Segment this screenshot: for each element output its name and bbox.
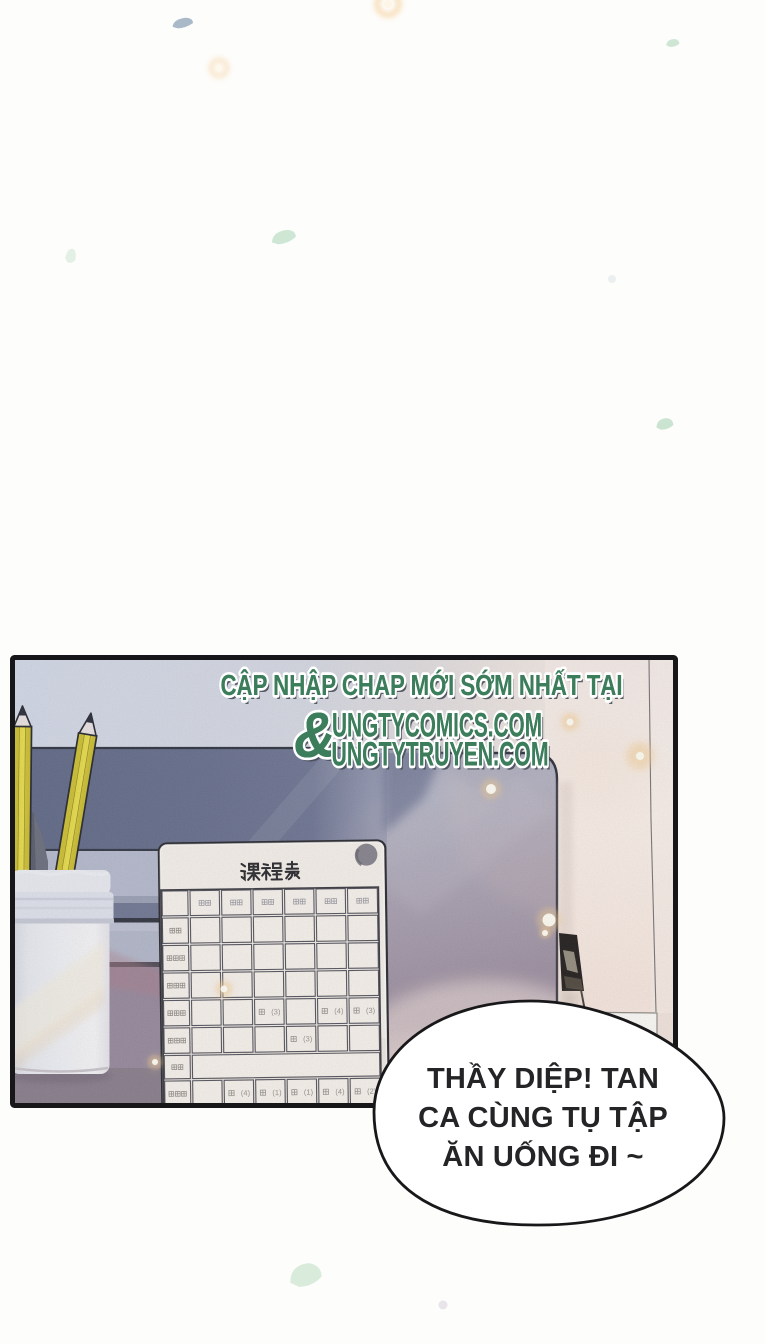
svg-text:CẬP NHẬP CHAP MỚI SỚM NHẤT TẠI: CẬP NHẬP CHAP MỚI SỚM NHẤT TẠI <box>221 668 623 702</box>
svg-text:UNGTYTRUYEN.COM: UNGTYTRUYEN.COM <box>332 736 549 774</box>
svg-text:&: & <box>294 699 336 771</box>
